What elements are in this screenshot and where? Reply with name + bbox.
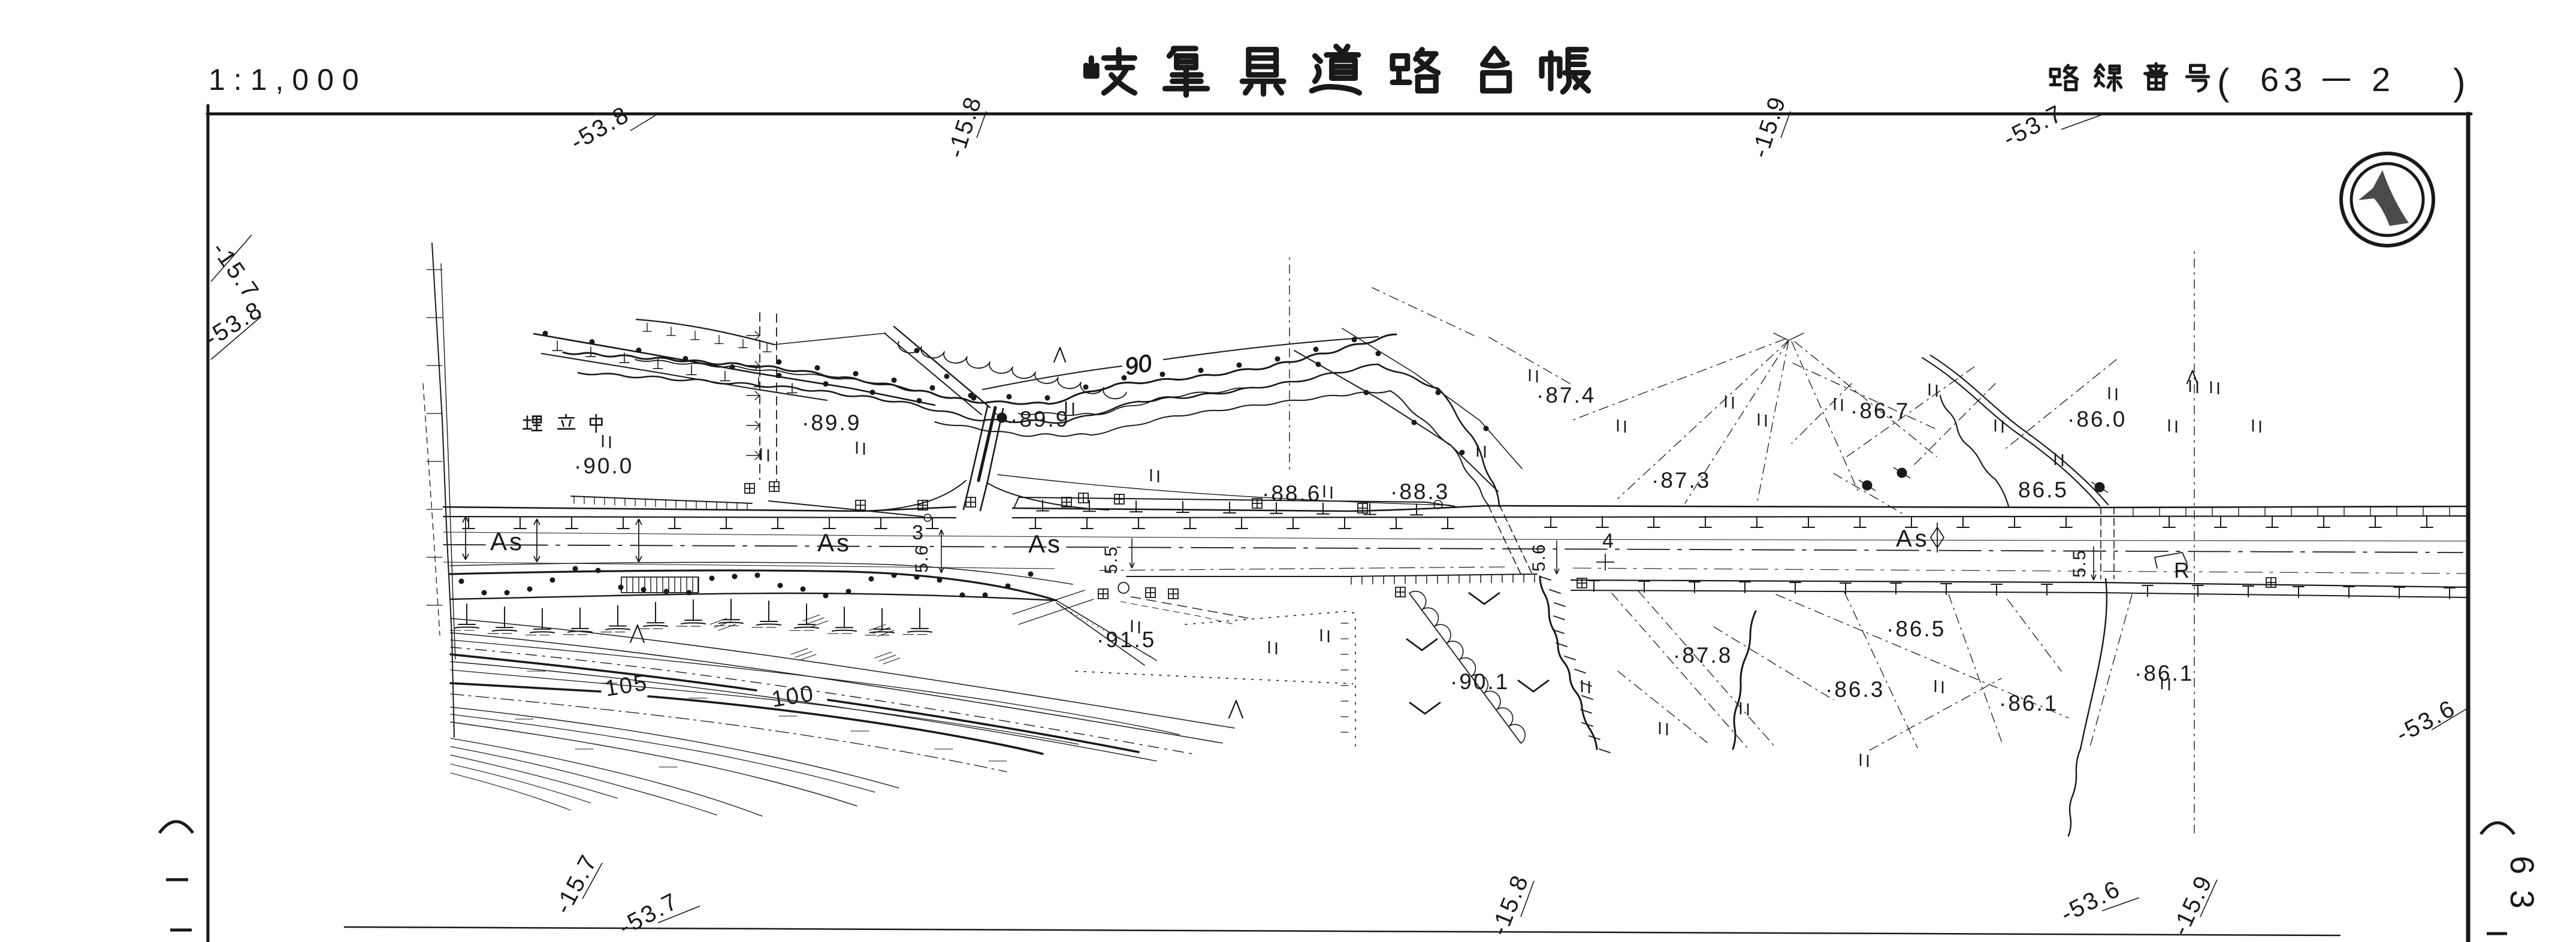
svg-text:·86.7: ·86.7 [1850,398,1910,423]
svg-text:-53.7: -53.7 [1999,100,2068,152]
svg-text:-15.7: -15.7 [549,850,603,918]
svg-text:105: 105 [603,670,650,702]
svg-text:As: As [1028,530,1062,558]
svg-text:5.6: 5.6 [912,544,932,573]
svg-text:-53.7: -53.7 [615,887,683,941]
svg-text:·88.6: ·88.6 [1262,481,1321,506]
svg-text:·86.0: ·86.0 [2067,407,2127,431]
svg-text:5.5: 5.5 [2070,549,2089,578]
svg-text:As: As [490,527,524,555]
svg-text:-53.6: -53.6 [2392,695,2460,748]
svg-text:R: R [2174,558,2191,582]
svg-text:(: ( [2217,62,2230,103]
svg-text:·90.0: ·90.0 [574,454,633,478]
svg-text:86.5: 86.5 [2018,478,2068,502]
svg-text:·91.5: ·91.5 [1097,627,1156,652]
svg-text:4: 4 [1602,530,1615,552]
svg-text:·87.8: ·87.8 [1673,643,1732,668]
svg-text:63: 63 [2503,856,2541,924]
svg-text:-15.9: -15.9 [2167,871,2218,940]
svg-text:63: 63 [2260,61,2307,98]
svg-text:-15.8: -15.8 [1486,870,1535,939]
svg-text:·88.3: ·88.3 [1390,479,1449,504]
svg-text:2: 2 [2372,61,2390,98]
svg-text:·89.9: ·89.9 [802,410,861,435]
svg-text:90: 90 [1123,350,1153,381]
svg-text:-53.8: -53.8 [566,101,635,156]
svg-text:·86.5: ·86.5 [1886,617,1946,641]
svg-text:-53.8: -53.8 [200,296,267,352]
svg-text:·87.3: ·87.3 [1651,468,1711,493]
svg-text:·86.1: ·86.1 [2134,661,2194,686]
svg-text:5.5: 5.5 [1101,545,1121,574]
svg-text:-53.6: -53.6 [2056,875,2125,928]
svg-text:-15.7: -15.7 [207,237,265,304]
svg-text:5.6: 5.6 [1529,543,1549,572]
svg-text:·86.1: ·86.1 [1999,691,2058,715]
svg-text:·90.1: ·90.1 [1450,669,1509,694]
svg-text:): ) [2453,62,2466,103]
svg-text:·86.3: ·86.3 [1825,677,1885,702]
svg-text:As: As [817,529,851,557]
svg-text:1:1,000: 1:1,000 [209,63,367,96]
svg-text:3: 3 [912,521,925,544]
svg-text:·89.9: ·89.9 [1010,407,1070,431]
svg-text:As: As [1896,526,1930,552]
svg-text:·87.4: ·87.4 [1536,383,1596,407]
